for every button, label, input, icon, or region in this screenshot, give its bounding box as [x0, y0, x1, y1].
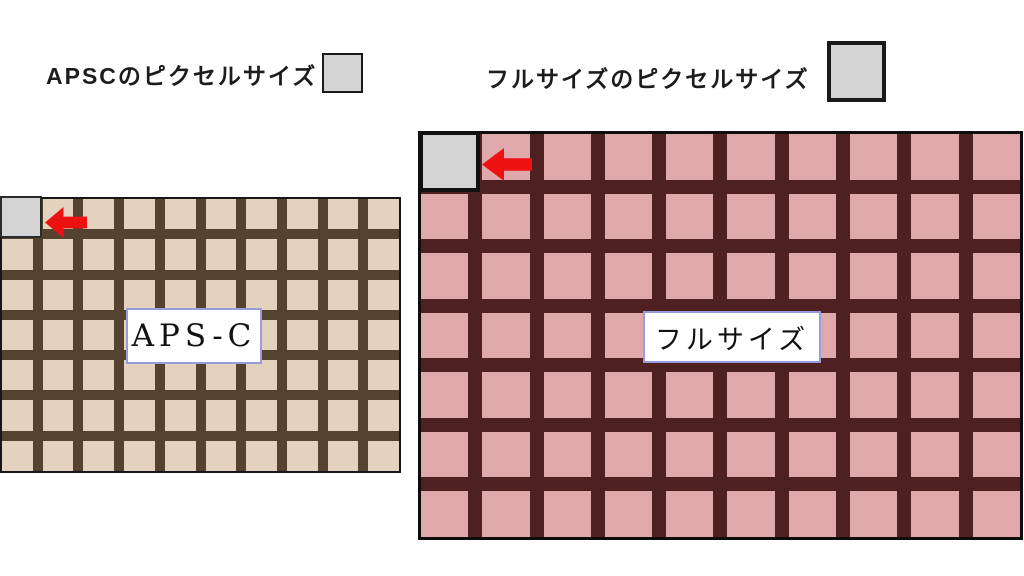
pixel-cell	[2, 320, 33, 350]
pixel-cell	[421, 253, 468, 299]
pixel-cell	[727, 253, 774, 299]
pixel-cell	[83, 199, 114, 229]
pixel-cell	[482, 134, 529, 180]
pixel-cell	[789, 491, 836, 537]
pixel-cell	[605, 253, 652, 299]
pixel-cell	[165, 280, 196, 310]
pixel-cell	[2, 441, 33, 471]
pixel-cell	[911, 491, 958, 537]
pixel-cell	[421, 432, 468, 478]
pixel-cell	[43, 280, 74, 310]
pixel-cell	[287, 441, 318, 471]
pixel-cell	[328, 280, 359, 310]
pixel-cell	[368, 199, 399, 229]
pixel-cell	[911, 194, 958, 240]
pixel-cell	[287, 239, 318, 269]
pixel-cell	[973, 134, 1020, 180]
pixel-size-comparison-diagram: APSCのピクセルサイズ フルサイズのピクセルサイズ APS-C フルサイズ	[0, 0, 1024, 576]
pixel-cell	[850, 253, 897, 299]
pixel-cell	[287, 199, 318, 229]
pixel-cell	[368, 360, 399, 390]
pixel-cell	[246, 400, 277, 430]
pixel-cell	[124, 199, 155, 229]
pixel-cell	[789, 432, 836, 478]
apsc-highlighted-pixel	[0, 196, 42, 238]
pixel-cell	[206, 239, 237, 269]
pixel-cell	[482, 253, 529, 299]
pixel-cell	[246, 199, 277, 229]
pixel-cell	[544, 194, 591, 240]
pixel-cell	[544, 253, 591, 299]
pixel-cell	[605, 194, 652, 240]
apsc-pixel-swatch	[322, 53, 363, 93]
pixel-cell	[43, 441, 74, 471]
pixel-cell	[83, 320, 114, 350]
pixel-cell	[368, 400, 399, 430]
pixel-cell	[482, 313, 529, 359]
pixel-cell	[911, 253, 958, 299]
pixel-cell	[973, 194, 1020, 240]
pixel-cell	[911, 134, 958, 180]
pixel-cell	[83, 400, 114, 430]
apsc-grid-label: APS-C	[126, 308, 262, 364]
pixel-cell	[2, 400, 33, 430]
pixel-cell	[165, 239, 196, 269]
pixel-cell	[124, 239, 155, 269]
pixel-cell	[206, 199, 237, 229]
pixel-cell	[124, 400, 155, 430]
pixel-cell	[544, 491, 591, 537]
pixel-cell	[246, 280, 277, 310]
pixel-cell	[328, 320, 359, 350]
pixel-cell	[850, 194, 897, 240]
pixel-cell	[789, 372, 836, 418]
pixel-cell	[544, 372, 591, 418]
pixel-cell	[789, 194, 836, 240]
pixel-cell	[973, 491, 1020, 537]
pixel-cell	[165, 400, 196, 430]
pixel-cell	[911, 432, 958, 478]
pixel-cell	[206, 280, 237, 310]
pixel-cell	[165, 360, 196, 390]
pixel-cell	[328, 239, 359, 269]
pixel-cell	[544, 134, 591, 180]
pixel-cell	[43, 400, 74, 430]
pixel-cell	[666, 372, 713, 418]
pixel-cell	[544, 313, 591, 359]
pixel-cell	[246, 360, 277, 390]
pixel-cell	[482, 194, 529, 240]
pixel-cell	[421, 372, 468, 418]
pixel-cell	[368, 320, 399, 350]
pixel-cell	[421, 194, 468, 240]
pixel-cell	[973, 313, 1020, 359]
pixel-cell	[789, 253, 836, 299]
pixel-cell	[850, 134, 897, 180]
pixel-cell	[43, 320, 74, 350]
pixel-cell	[328, 441, 359, 471]
pixel-cell	[666, 432, 713, 478]
pixel-cell	[727, 491, 774, 537]
pixel-cell	[368, 239, 399, 269]
pixel-cell	[850, 432, 897, 478]
pixel-cell	[666, 253, 713, 299]
pixel-cell	[165, 199, 196, 229]
pixel-cell	[666, 134, 713, 180]
pixel-cell	[287, 400, 318, 430]
pixel-cell	[83, 441, 114, 471]
pixel-cell	[83, 360, 114, 390]
pixel-cell	[368, 280, 399, 310]
pixel-cell	[124, 360, 155, 390]
pixel-cell	[206, 360, 237, 390]
pixel-cell	[43, 360, 74, 390]
pixel-cell	[206, 441, 237, 471]
fullsize-highlighted-pixel	[419, 131, 480, 192]
pixel-cell	[124, 280, 155, 310]
pixel-cell	[368, 441, 399, 471]
pixel-cell	[850, 313, 897, 359]
pixel-cell	[328, 400, 359, 430]
apsc-grid-label-text: APS-C	[132, 318, 257, 354]
pixel-cell	[206, 400, 237, 430]
pixel-cell	[973, 432, 1020, 478]
pixel-cell	[482, 372, 529, 418]
pixel-cell	[421, 491, 468, 537]
fullsize-grid-label: フルサイズ	[643, 311, 821, 363]
pixel-cell	[287, 360, 318, 390]
pixel-cell	[850, 372, 897, 418]
pixel-cell	[83, 239, 114, 269]
pixel-cell	[328, 199, 359, 229]
pixel-cell	[43, 239, 74, 269]
pixel-cell	[727, 134, 774, 180]
pixel-cell	[421, 313, 468, 359]
fullsize-pixel-swatch	[827, 41, 886, 102]
pixel-cell	[83, 280, 114, 310]
pixel-cell	[544, 432, 591, 478]
pixel-cell	[911, 372, 958, 418]
pixel-cell	[2, 360, 33, 390]
pixel-cell	[911, 313, 958, 359]
pixel-cell	[666, 194, 713, 240]
pixel-cell	[2, 280, 33, 310]
pixel-cell	[246, 239, 277, 269]
pixel-cell	[165, 441, 196, 471]
pixel-cell	[246, 441, 277, 471]
pixel-cell	[850, 491, 897, 537]
pixel-cell	[605, 432, 652, 478]
pixel-cell	[482, 432, 529, 478]
pixel-cell	[789, 134, 836, 180]
pixel-cell	[287, 280, 318, 310]
pixel-cell	[328, 360, 359, 390]
pixel-cell	[2, 239, 33, 269]
pixel-cell	[605, 491, 652, 537]
fullsize-grid-label-text: フルサイズ	[655, 318, 809, 357]
pixel-cell	[727, 194, 774, 240]
pixel-cell	[973, 253, 1020, 299]
pixel-cell	[482, 491, 529, 537]
pixel-cell	[605, 372, 652, 418]
pixel-cell	[727, 372, 774, 418]
fullsize-pixel-size-caption: フルサイズのピクセルサイズ	[486, 60, 810, 94]
pixel-cell	[727, 432, 774, 478]
pixel-cell	[666, 491, 713, 537]
pixel-cell	[973, 372, 1020, 418]
pixel-cell	[605, 134, 652, 180]
pixel-cell	[287, 320, 318, 350]
pixel-cell	[124, 441, 155, 471]
apsc-pixel-size-caption: APSCのピクセルサイズ	[46, 57, 317, 91]
